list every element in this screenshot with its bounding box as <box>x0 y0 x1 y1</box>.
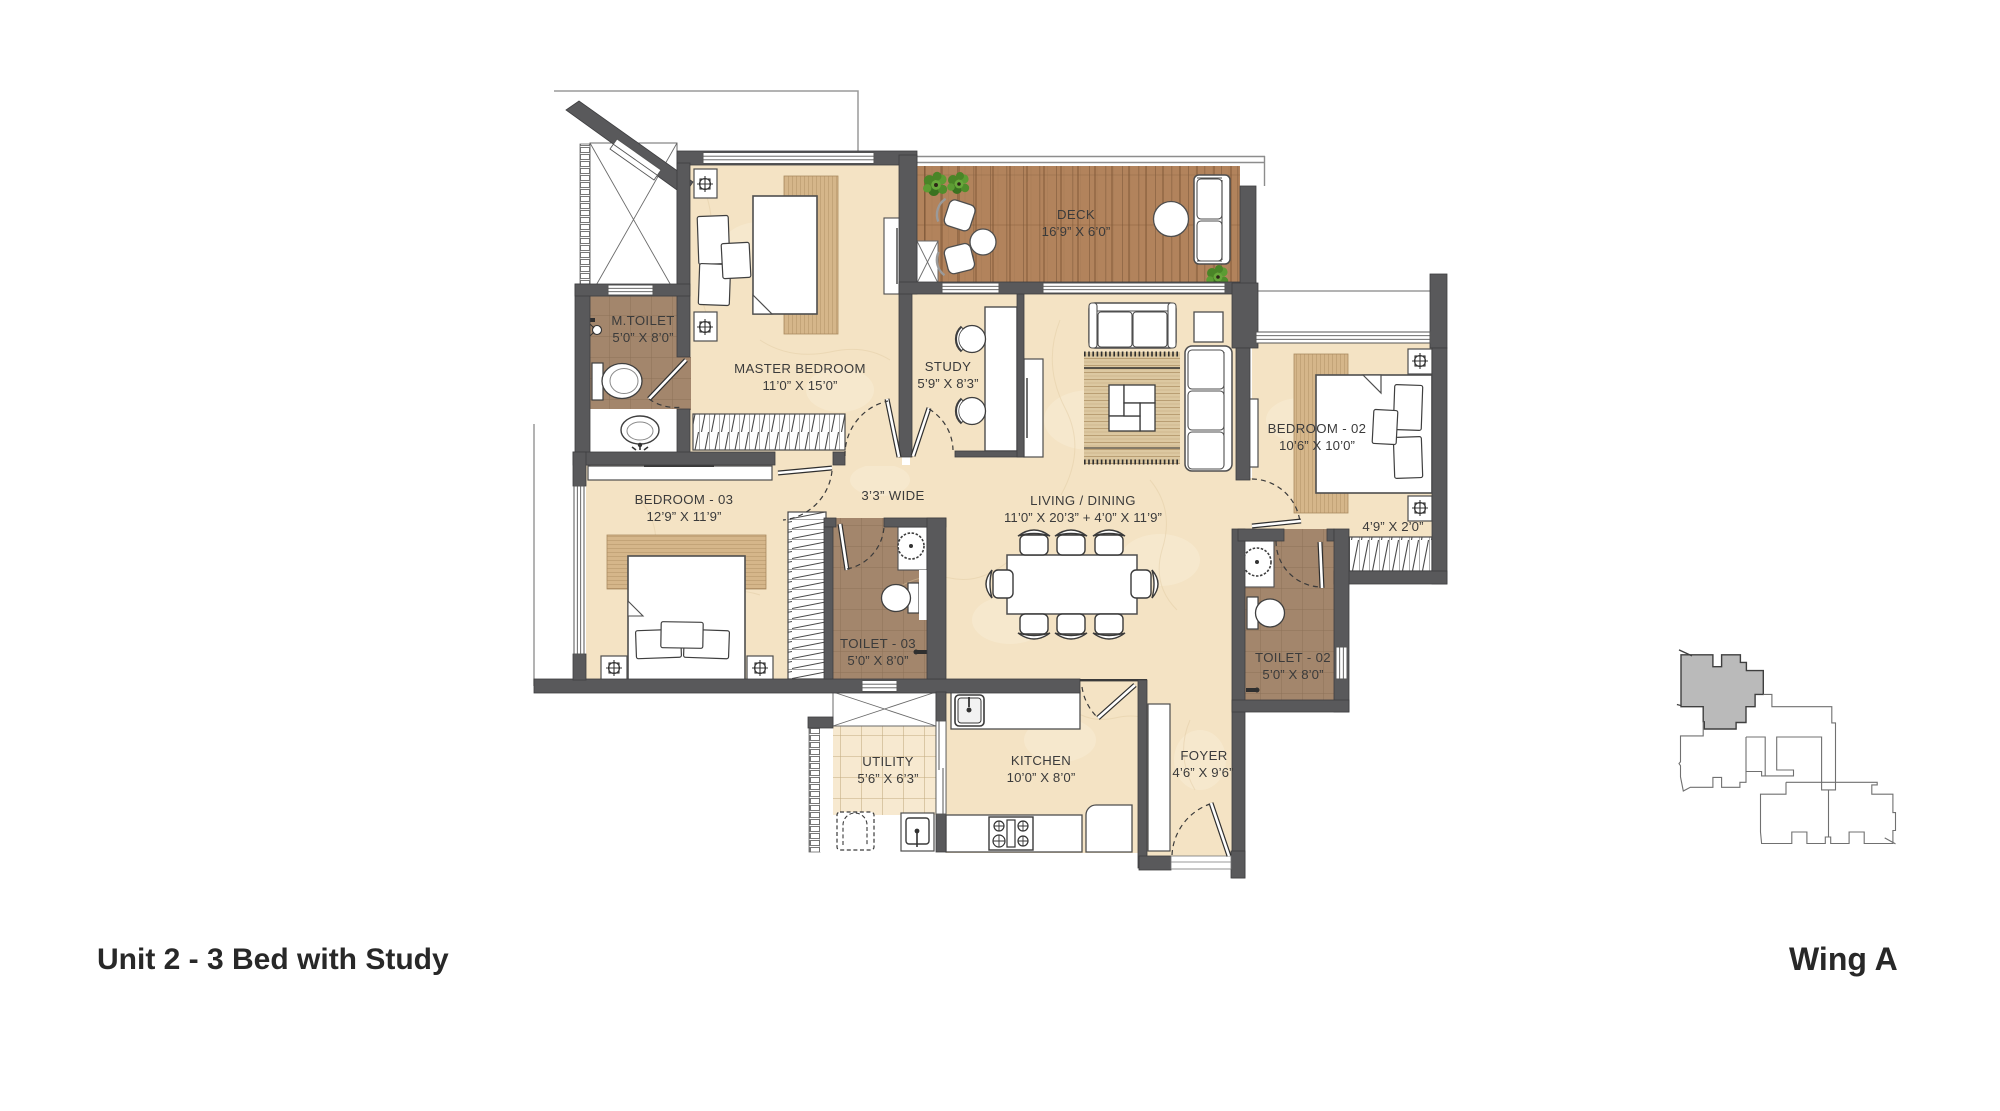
svg-text:5’6” X 6’3”: 5’6” X 6’3” <box>857 771 918 786</box>
svg-text:BEDROOM - 02: BEDROOM - 02 <box>1268 421 1367 436</box>
svg-text:DECK: DECK <box>1057 207 1095 222</box>
svg-text:FOYER: FOYER <box>1180 748 1227 763</box>
svg-text:4’9” X 2’0”: 4’9” X 2’0” <box>1362 519 1423 534</box>
svg-text:UTILITY: UTILITY <box>862 754 914 769</box>
svg-text:3’3” WIDE: 3’3” WIDE <box>861 488 924 503</box>
svg-text:5’9” X 8’3”: 5’9” X 8’3” <box>917 376 978 391</box>
svg-text:MASTER BEDROOM: MASTER BEDROOM <box>734 361 866 376</box>
svg-text:TOILET - 02: TOILET - 02 <box>1255 650 1331 665</box>
svg-text:11’0” X 15’0”: 11’0” X 15’0” <box>762 378 837 393</box>
svg-text:BEDROOM - 03: BEDROOM - 03 <box>635 492 734 507</box>
svg-text:Wing A: Wing A <box>1789 941 1898 977</box>
svg-text:5’0” X 8’0”: 5’0” X 8’0” <box>847 653 908 668</box>
svg-text:TOILET - 03: TOILET - 03 <box>840 636 916 651</box>
svg-text:STUDY: STUDY <box>925 359 971 374</box>
svg-text:5’0” X 8’0”: 5’0” X 8’0” <box>1262 667 1323 682</box>
svg-text:10’0” X 8’0”: 10’0” X 8’0” <box>1007 770 1076 785</box>
svg-text:KITCHEN: KITCHEN <box>1011 753 1071 768</box>
svg-text:12’9” X 11’9”: 12’9” X 11’9” <box>646 509 721 524</box>
svg-text:4’6” X 9’6”: 4’6” X 9’6” <box>1172 765 1233 780</box>
svg-text:Unit 2 - 3 Bed with Study: Unit 2 - 3 Bed with Study <box>97 943 449 976</box>
svg-text:M.TOILET: M.TOILET <box>611 313 674 328</box>
svg-text:11’0” X 20’3” + 4’0” X 11’9”: 11’0” X 20’3” + 4’0” X 11’9” <box>1004 510 1162 525</box>
svg-text:16’9” X 6’0”: 16’9” X 6’0” <box>1042 224 1111 239</box>
svg-text:5’0” X 8’0”: 5’0” X 8’0” <box>612 330 673 345</box>
svg-text:10’6” X 10’0”: 10’6” X 10’0” <box>1279 438 1355 453</box>
svg-text:LIVING / DINING: LIVING / DINING <box>1030 493 1136 508</box>
